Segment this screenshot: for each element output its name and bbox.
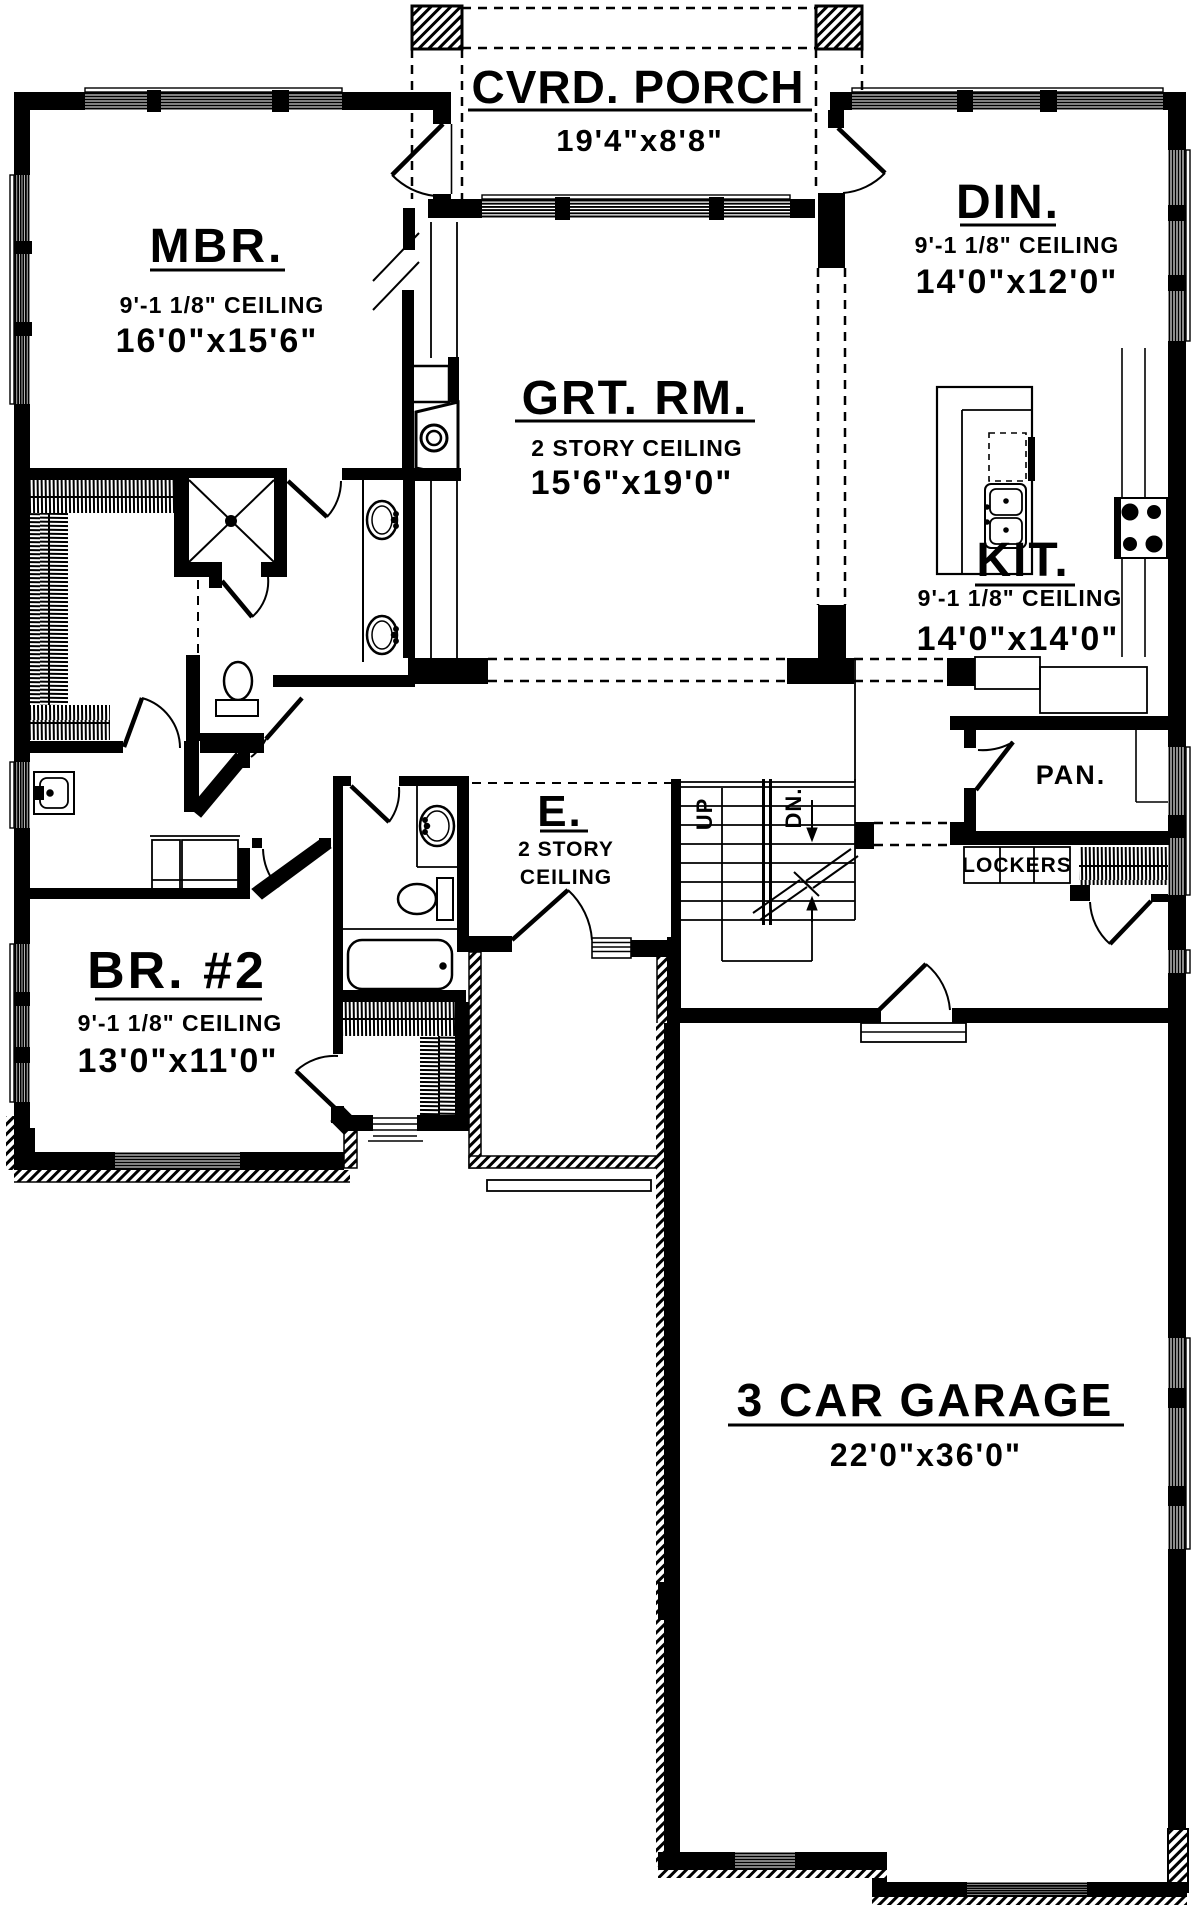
svg-text:CVRD. PORCH: CVRD. PORCH [471,61,804,113]
svg-text:9'-1 1/8" CEILING: 9'-1 1/8" CEILING [120,292,325,318]
svg-text:3 CAR GARAGE: 3 CAR GARAGE [737,1374,1114,1426]
svg-text:MBR.: MBR. [150,220,285,273]
svg-text:DN.: DN. [781,788,806,829]
svg-text:9'-1 1/8" CEILING: 9'-1 1/8" CEILING [915,232,1120,258]
svg-text:9'-1 1/8" CEILING: 9'-1 1/8" CEILING [78,1010,283,1036]
svg-text:KIT.: KIT. [976,534,1069,587]
svg-text:9'-1 1/8" CEILING: 9'-1 1/8" CEILING [918,585,1123,611]
svg-text:22'0"x36'0": 22'0"x36'0" [830,1437,1022,1473]
svg-text:UP: UP [692,798,717,831]
svg-text:BR. #2: BR. #2 [87,942,267,1000]
svg-text:E.: E. [537,787,583,836]
svg-text:PAN.: PAN. [1036,760,1107,790]
svg-text:16'0"x15'6": 16'0"x15'6" [116,322,319,360]
svg-text:15'6"x19'0": 15'6"x19'0" [531,464,734,502]
svg-text:GRT. RM.: GRT. RM. [522,372,749,425]
svg-text:DIN.: DIN. [956,176,1060,229]
svg-text:CEILING: CEILING [520,866,612,889]
svg-text:19'4"x8'8": 19'4"x8'8" [556,123,724,158]
svg-text:2 STORY: 2 STORY [518,838,614,861]
svg-text:13'0"x11'0": 13'0"x11'0" [78,1042,279,1080]
svg-text:14'0"x12'0": 14'0"x12'0" [916,263,1119,301]
svg-text:14'0"x14'0": 14'0"x14'0" [917,620,1120,658]
svg-text:2 STORY CEILING: 2 STORY CEILING [531,435,742,461]
svg-text:LOCKERS: LOCKERS [962,854,1072,877]
